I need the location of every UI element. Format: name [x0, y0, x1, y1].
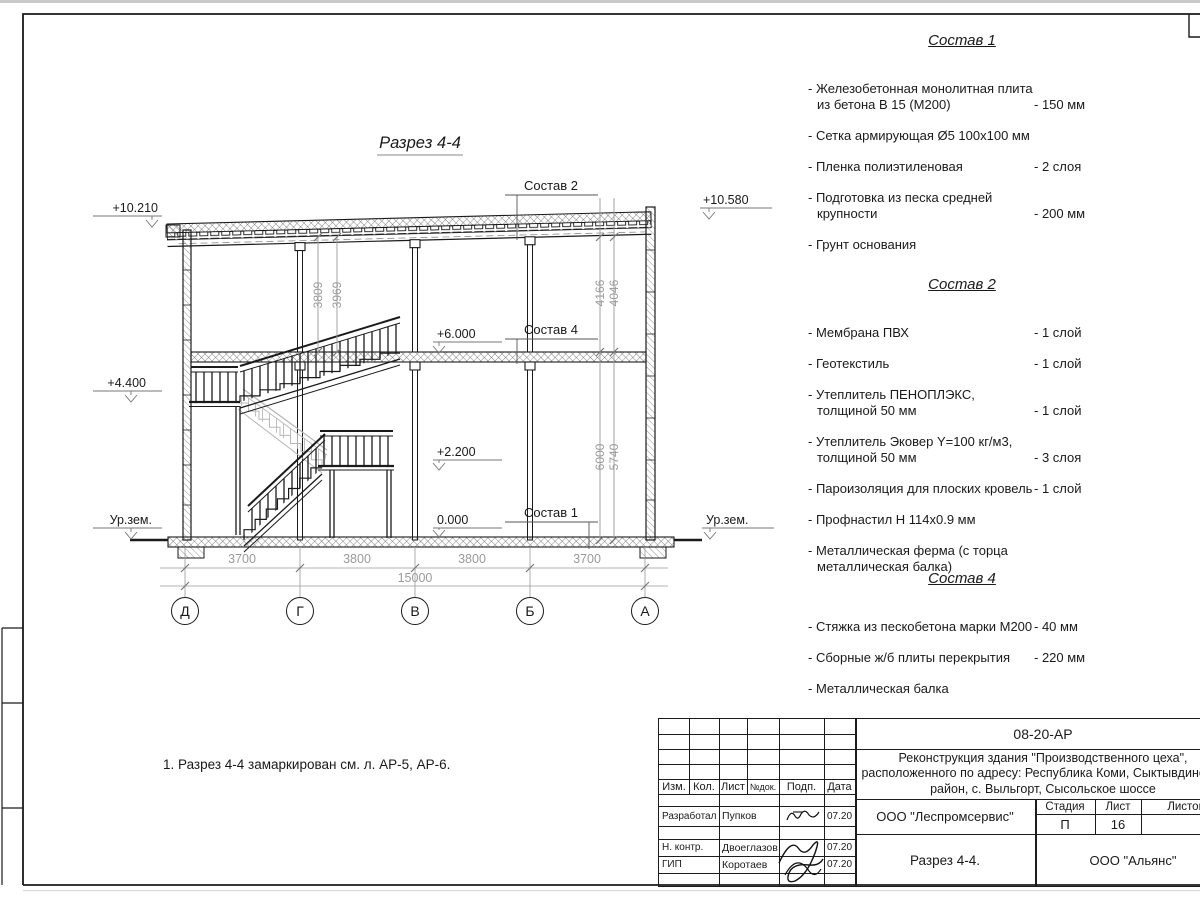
tb-name-developer: Пупков	[719, 806, 782, 826]
hdim-1: 3700	[228, 552, 256, 566]
composition-title: Состав 2	[808, 276, 1116, 293]
callout-sostav4: Состав 4	[524, 322, 578, 337]
composition-item: - Пароизоляция для плоских кровель - 1 с…	[808, 481, 1116, 497]
item-name: - Грунт основания	[808, 237, 1034, 253]
axis-v: В	[410, 603, 419, 619]
composition-item: - Железобетонная монолитная плита из бет…	[808, 81, 1116, 113]
level-roof-right: +10.580	[703, 193, 749, 207]
vdim-5740: 5740	[607, 443, 621, 470]
stair-flight-lower	[244, 434, 325, 552]
tb-project-line3: район, с. Выльгорт, Сысольское шоссе	[930, 782, 1156, 798]
tb-col-ndok: №док.	[747, 779, 779, 794]
composition-item: - Утеплитель ПЕНОПЛЭКС, толщиной 50 мм -…	[808, 387, 1116, 419]
level-landing-upper: +4.400	[107, 376, 146, 390]
signature-developer	[781, 807, 823, 825]
sheet-bottom-shadow	[23, 890, 1200, 891]
composition-item: - Пленка полиэтиленовая - 2 слоя	[808, 159, 1116, 175]
composition-item: - Сборные ж/б плиты перекрытия - 220 мм	[808, 650, 1116, 666]
callout-sostav2: Состав 2	[524, 178, 578, 193]
tb-col-data: Дата	[824, 779, 855, 794]
stair-flight-upper	[240, 317, 400, 414]
wall-right	[646, 207, 655, 540]
item-name: - Сборные ж/б плиты перекрытия	[808, 650, 1034, 666]
tb-sheet-label: Лист	[1095, 799, 1141, 814]
roof	[167, 212, 651, 247]
level-landing-lower: +2.200	[437, 445, 476, 459]
item-name: - Подготовка из песка средней крупности	[808, 190, 1034, 222]
tb-date-developer: 07.20	[824, 806, 855, 826]
vdim-6000: 6000	[593, 443, 607, 470]
level-ground-left: Ур.зем.	[110, 513, 152, 527]
tb-project-line2: расположенного по адресу: Республика Ком…	[861, 766, 1200, 782]
vdim-3969: 3969	[330, 281, 344, 308]
item-value: - 1 слой	[1034, 481, 1116, 497]
item-name: - Пароизоляция для плоских кровель	[808, 481, 1034, 497]
item-name: - Профнастил Н 114х0.9 мм	[808, 512, 1034, 528]
hdim-4: 3700	[573, 552, 601, 566]
tb-drawing-name: Разрез 4-4.	[855, 834, 1035, 886]
axis-d: Д	[180, 603, 190, 619]
composition-list-4: Состав 4 - Стяжка из пескобетона марки М…	[808, 570, 1116, 712]
item-name: - Стяжка из пескобетона марки М200	[808, 619, 1034, 635]
item-name: - Пленка полиэтиленовая	[808, 159, 1034, 175]
tb-org2: ООО "Альянс"	[1035, 834, 1200, 886]
item-value: - 1 слой	[1034, 356, 1116, 372]
item-value: - 1 слой	[1034, 403, 1116, 419]
tb-org1: ООО "Леспромсервис"	[855, 799, 1035, 834]
composition-item: - Грунт основания	[808, 237, 1116, 253]
tb-name-gip: Коротаев	[719, 856, 782, 873]
tb-date-ncontrol: 07.20	[824, 839, 855, 856]
axis-a: А	[640, 603, 650, 619]
composition-item: - Утеплитель Эковер Y=100 кг/м3, толщино…	[808, 434, 1116, 466]
item-name: - Геотекстиль	[808, 356, 1034, 372]
tb-stage-label: Стадия	[1035, 799, 1095, 814]
tb-col-kol: Кол.	[689, 779, 719, 794]
sheet-note: 1. Разрез 4-4 замаркирован см. л. АР-5, …	[163, 757, 450, 772]
item-value: - 2 слоя	[1034, 159, 1116, 175]
level-roof-left: +10.210	[112, 201, 158, 215]
composition-item: - Стяжка из пескобетона марки М200 - 40 …	[808, 619, 1116, 635]
level-ground-right: Ур.зем.	[706, 513, 748, 527]
tb-role-developer: Разработал	[659, 806, 722, 826]
composition-list-1: Состав 1 - Железобетонная монолитная пли…	[808, 32, 1116, 268]
item-name: - Железобетонная монолитная плита из бет…	[808, 81, 1034, 113]
composition-item: - Геотекстиль - 1 слой	[808, 356, 1116, 372]
item-value: - 220 мм	[1034, 650, 1116, 666]
tb-sheets-label: Листов	[1141, 799, 1200, 814]
item-value: - 150 мм	[1034, 97, 1116, 113]
composition-title: Состав 4	[808, 570, 1116, 587]
left-margin-boxes	[2, 628, 23, 885]
item-value: - 1 слой	[1034, 325, 1116, 341]
axis-b: Б	[525, 603, 534, 619]
item-value: - 200 мм	[1034, 206, 1116, 222]
foundation-right	[640, 547, 666, 558]
tb-role-ncontrol: Н. контр.	[659, 839, 722, 856]
tb-doc-code: 08-20-АР	[855, 719, 1200, 749]
hdim-total: 15000	[398, 571, 433, 585]
level-floor1: 0.000	[437, 513, 468, 527]
item-name: - Металлическая балка	[808, 681, 1034, 697]
drawing-title: Разрез 4-4	[379, 134, 461, 152]
tb-col-podp: Подп.	[779, 779, 824, 794]
tb-project: Реконструкция здания "Производственного …	[855, 750, 1200, 798]
tb-role-gip: ГИП	[659, 856, 722, 873]
tb-col-list: Лист	[719, 779, 747, 794]
composition-list-2: Состав 2 - Мембрана ПВХ - 1 слой - Геоте…	[808, 276, 1116, 590]
callout-sostav1: Состав 1	[524, 505, 578, 520]
composition-item: - Профнастил Н 114х0.9 мм	[808, 512, 1116, 528]
tb-sheet-value: 16	[1095, 814, 1141, 834]
composition-item: - Мембрана ПВХ - 1 слой	[808, 325, 1116, 341]
hdim-3: 3800	[458, 552, 486, 566]
composition-title: Состав 1	[808, 32, 1116, 49]
item-name: - Сетка армирующая Ø5 100х100 мм	[808, 128, 1034, 144]
section-callouts: Состав 2 Состав 4 Состав 1	[505, 178, 598, 549]
vertical-dimensions: 3809 3969 4166 4046 6000 5740	[311, 198, 621, 544]
item-name: - Утеплитель ПЕНОПЛЭКС, толщиной 50 мм	[808, 387, 1034, 419]
bottom-dimensions: 3700 3800 3800 3700 15000 Д Г В Б А	[160, 547, 668, 625]
item-name: - Утеплитель Эковер Y=100 кг/м3, толщино…	[808, 434, 1034, 466]
tb-name-ncontrol: Двоеглазов	[719, 839, 782, 856]
vdim-4046: 4046	[607, 279, 621, 306]
roof-left-bracket	[166, 225, 180, 237]
composition-item: - Подготовка из песка средней крупности …	[808, 190, 1116, 222]
tb-project-line1: Реконструкция здания "Производственного …	[899, 751, 1188, 767]
tb-col-izm: Изм.	[659, 779, 689, 794]
composition-item: - Металлическая балка	[808, 681, 1116, 697]
stair-landing-lower	[318, 431, 394, 538]
signature-gip	[775, 835, 827, 885]
tb-date-gip: 07.20	[824, 856, 855, 873]
item-value: - 40 мм	[1034, 619, 1116, 635]
vdim-3809: 3809	[311, 281, 325, 308]
page-top-edge	[0, 0, 1200, 3]
axis-g: Г	[296, 603, 304, 619]
vdim-4166: 4166	[593, 279, 607, 306]
stair-landing-upper	[189, 367, 240, 535]
foundation-left	[178, 547, 204, 558]
title-block: Изм. Кол. Лист №док. Подп. Дата Разработ…	[658, 718, 1200, 887]
item-name: - Мембрана ПВХ	[808, 325, 1034, 341]
item-value: - 3 слоя	[1034, 450, 1116, 466]
wall-left	[183, 230, 191, 540]
level-floor2: +6.000	[437, 327, 476, 341]
composition-item: - Сетка армирующая Ø5 100х100 мм	[808, 128, 1116, 144]
hdim-2: 3800	[343, 552, 371, 566]
tb-stage-value: П	[1035, 814, 1095, 834]
